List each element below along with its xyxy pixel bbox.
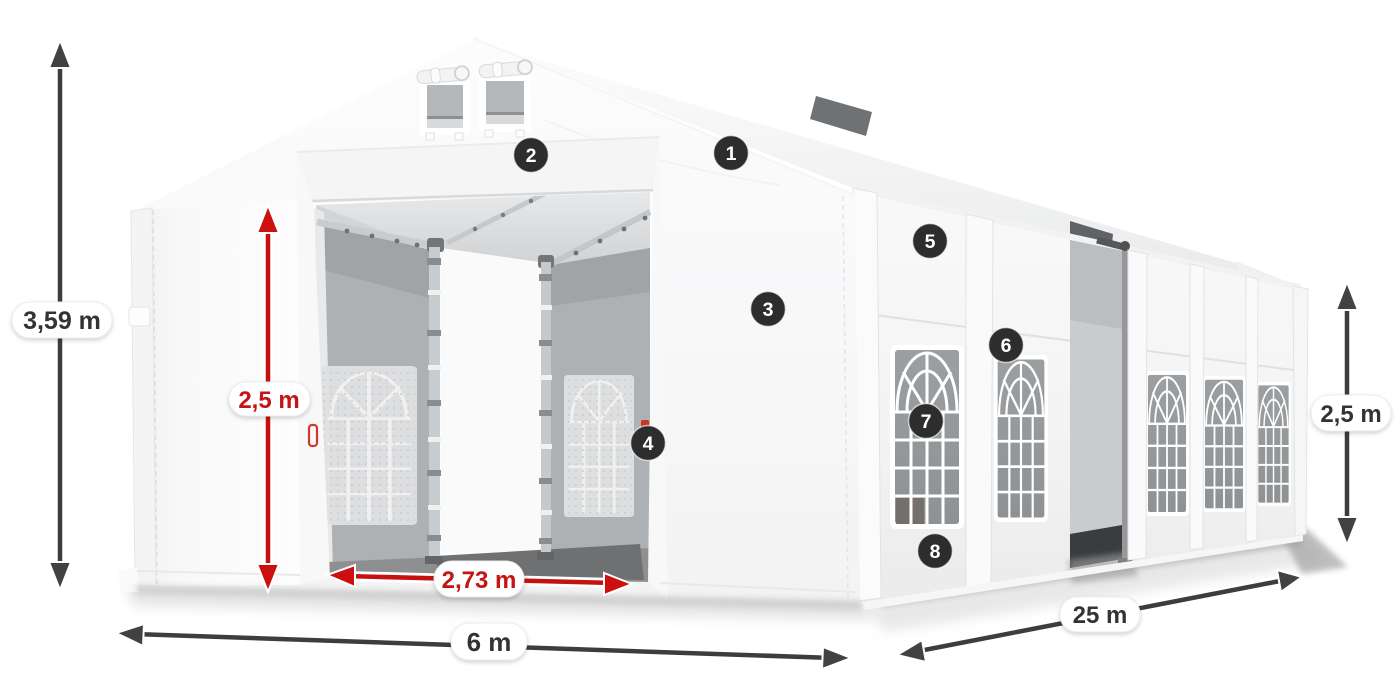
svg-text:3: 3 — [763, 299, 774, 321]
svg-text:25 m: 25 m — [1073, 602, 1128, 629]
svg-text:3,59 m: 3,59 m — [23, 307, 101, 335]
svg-text:2,5 m: 2,5 m — [1320, 401, 1381, 428]
svg-text:2,5 m: 2,5 m — [238, 387, 299, 414]
svg-text:2,73 m: 2,73 m — [442, 567, 517, 594]
svg-text:4: 4 — [643, 433, 654, 455]
svg-text:7: 7 — [921, 411, 932, 433]
svg-text:1: 1 — [726, 143, 737, 165]
svg-text:6 m: 6 m — [467, 627, 512, 657]
svg-text:2: 2 — [526, 145, 537, 167]
svg-text:6: 6 — [1001, 335, 1012, 357]
svg-text:8: 8 — [930, 541, 941, 563]
svg-text:5: 5 — [925, 231, 936, 253]
